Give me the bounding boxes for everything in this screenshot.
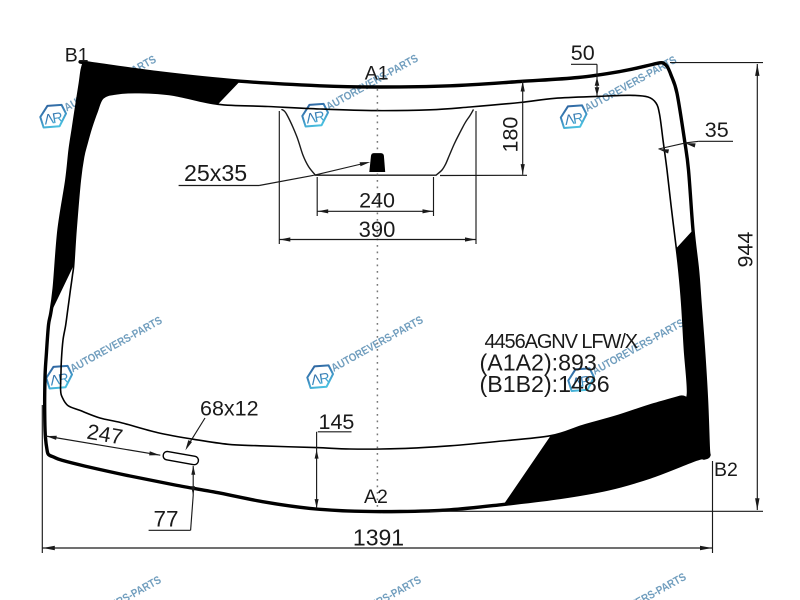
- svg-text:B1: B1: [65, 44, 89, 66]
- svg-text:(B1B2):1486: (B1B2):1486: [480, 371, 610, 397]
- svg-text:68x12: 68x12: [200, 397, 259, 421]
- svg-text:50: 50: [571, 41, 595, 65]
- svg-text:1391: 1391: [353, 525, 404, 551]
- svg-text:ΛR: ΛR: [305, 109, 326, 128]
- svg-text:B2: B2: [714, 459, 738, 481]
- svg-text:ΛR: ΛR: [310, 370, 331, 389]
- svg-text:A1: A1: [365, 62, 389, 84]
- svg-text:A2: A2: [364, 486, 388, 508]
- svg-text:25x35: 25x35: [184, 160, 247, 186]
- svg-text:944: 944: [734, 232, 758, 268]
- svg-text:ΛR: ΛR: [43, 110, 64, 129]
- svg-text:145: 145: [319, 410, 355, 434]
- svg-text:180: 180: [499, 117, 523, 153]
- svg-text:240: 240: [359, 189, 395, 213]
- svg-text:ΛR: ΛR: [564, 110, 585, 129]
- svg-text:35: 35: [705, 118, 729, 142]
- svg-text:ΛR: ΛR: [49, 371, 70, 390]
- svg-text:390: 390: [359, 217, 396, 242]
- svg-text:77: 77: [154, 507, 179, 532]
